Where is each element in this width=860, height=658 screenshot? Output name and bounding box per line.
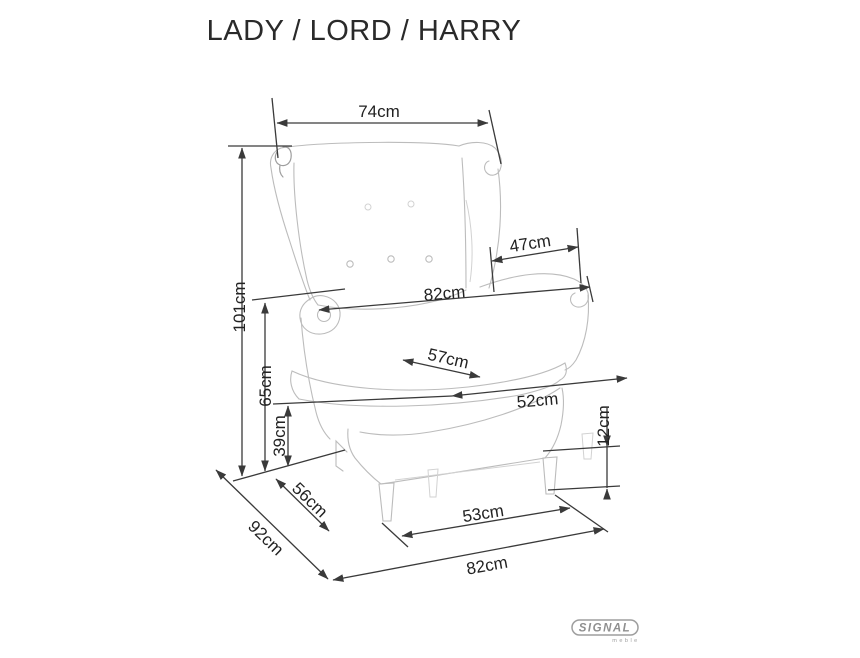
chair-seat-cushion-left — [291, 371, 299, 399]
dim-seat-height: 39cm — [270, 406, 289, 466]
chair-front-right-leg — [543, 457, 557, 494]
tufting-buttons — [347, 201, 432, 267]
dim-width-at-arms-label: 82cm — [423, 282, 466, 305]
chair-rear-left-leg — [428, 469, 438, 497]
dim-seat-height-label: 39cm — [270, 415, 289, 457]
dim-seat-depth: 52cm — [273, 378, 627, 412]
chair-rear-right-leg — [582, 433, 593, 459]
dim-top-width-label: 74cm — [358, 102, 400, 121]
dimension-annotations: 74cm 101cm 47cm 82cm 57cm — [216, 98, 627, 580]
chair-left-arm-front — [301, 318, 330, 439]
floor-reference-line — [233, 450, 345, 481]
dim-inner-depth: 56cm — [276, 479, 331, 531]
dim-front-leg-span-label: 53cm — [461, 501, 505, 526]
chair-base-left — [348, 429, 381, 484]
chair-underbase-line — [395, 462, 540, 480]
button-icon — [426, 256, 432, 262]
dim-top-width: 74cm — [272, 98, 501, 164]
armchair-sketch — [270, 142, 593, 521]
dim-armrest-length: 47cm — [490, 228, 581, 292]
dim-seat-depth-label: 52cm — [516, 389, 559, 412]
logo-sub-text: meble — [612, 638, 639, 644]
chair-left-wing — [270, 148, 310, 300]
logo-brand-text: SIGNAL — [579, 623, 631, 635]
dim-seat-width: 57cm — [403, 345, 480, 377]
dim-leg-height-label: 12cm — [594, 405, 613, 447]
dim-armrest-height: 65cm — [252, 289, 345, 471]
chair-base-corner-notch — [336, 441, 347, 471]
dim-inner-depth-label: 56cm — [288, 479, 331, 522]
chair-right-wing-fold — [466, 200, 472, 282]
dim-armrest-height-label: 65cm — [256, 365, 275, 407]
chair-seat-cushion-top — [292, 363, 565, 390]
furniture-dimension-sheet: LADY / LORD / HARRY — [0, 0, 860, 658]
dim-width-at-arms: 82cm — [319, 276, 593, 310]
button-icon — [365, 204, 371, 210]
chair-base-front-bottom — [381, 458, 545, 484]
dim-base-width-label: 82cm — [465, 553, 509, 579]
chair-right-armrest — [480, 274, 588, 307]
chair-back-panel-left — [294, 163, 318, 305]
button-icon — [347, 261, 353, 267]
brand-logo: SIGNAL meble — [572, 620, 640, 644]
button-icon — [388, 256, 394, 262]
chair-back-panel-right — [462, 158, 466, 288]
chair-left-armrest-scroll — [300, 296, 340, 334]
chair-right-arm-front — [565, 295, 589, 370]
dim-total-height-label: 101cm — [230, 281, 249, 332]
dim-total-depth: 92cm — [216, 470, 328, 579]
dim-total-depth-label: 92cm — [244, 517, 287, 560]
page-title: LADY / LORD / HARRY — [207, 15, 522, 47]
dimension-diagram: LADY / LORD / HARRY — [0, 0, 860, 658]
chair-back-top-edge — [281, 142, 459, 148]
button-icon — [408, 201, 414, 207]
chair-front-left-leg — [379, 483, 394, 521]
dim-seat-width-label: 57cm — [426, 345, 471, 373]
